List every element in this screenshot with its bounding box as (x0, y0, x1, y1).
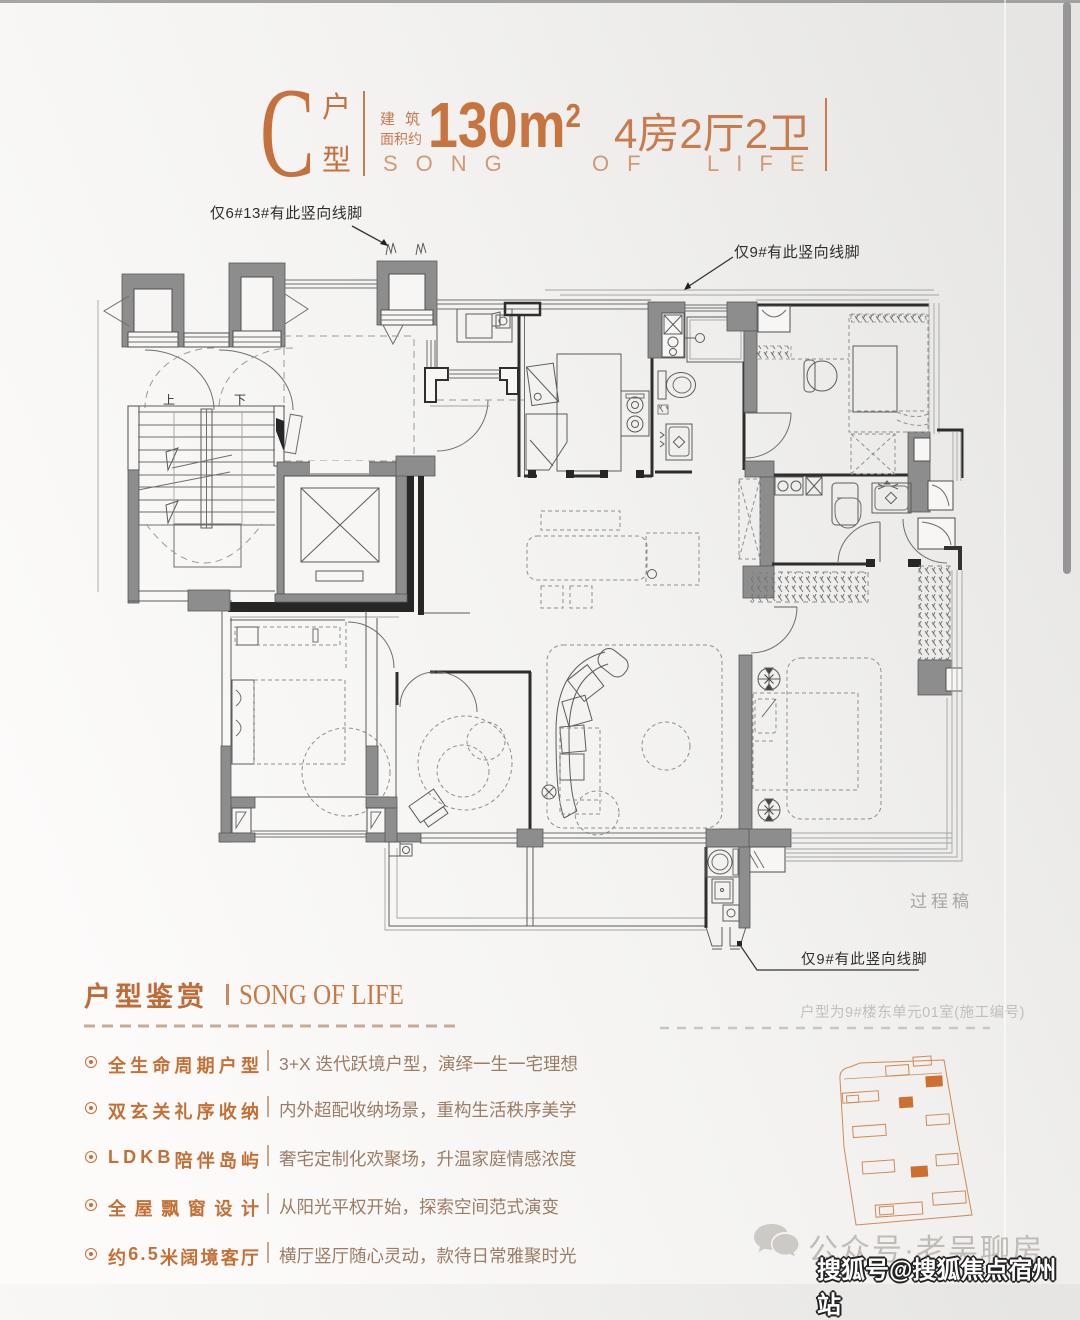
svg-text:仅9#有此竖向线脚: 仅9#有此竖向线脚 (734, 244, 860, 261)
svg-text:上: 上 (163, 393, 175, 407)
svg-text:仅9#有此竖向线脚: 仅9#有此竖向线脚 (801, 951, 928, 968)
svg-text:仅6#13#有此竖向线脚: 仅6#13#有此竖向线脚 (210, 205, 363, 222)
svg-text:过程稿: 过程稿 (910, 892, 973, 911)
svg-text:下: 下 (234, 393, 246, 407)
